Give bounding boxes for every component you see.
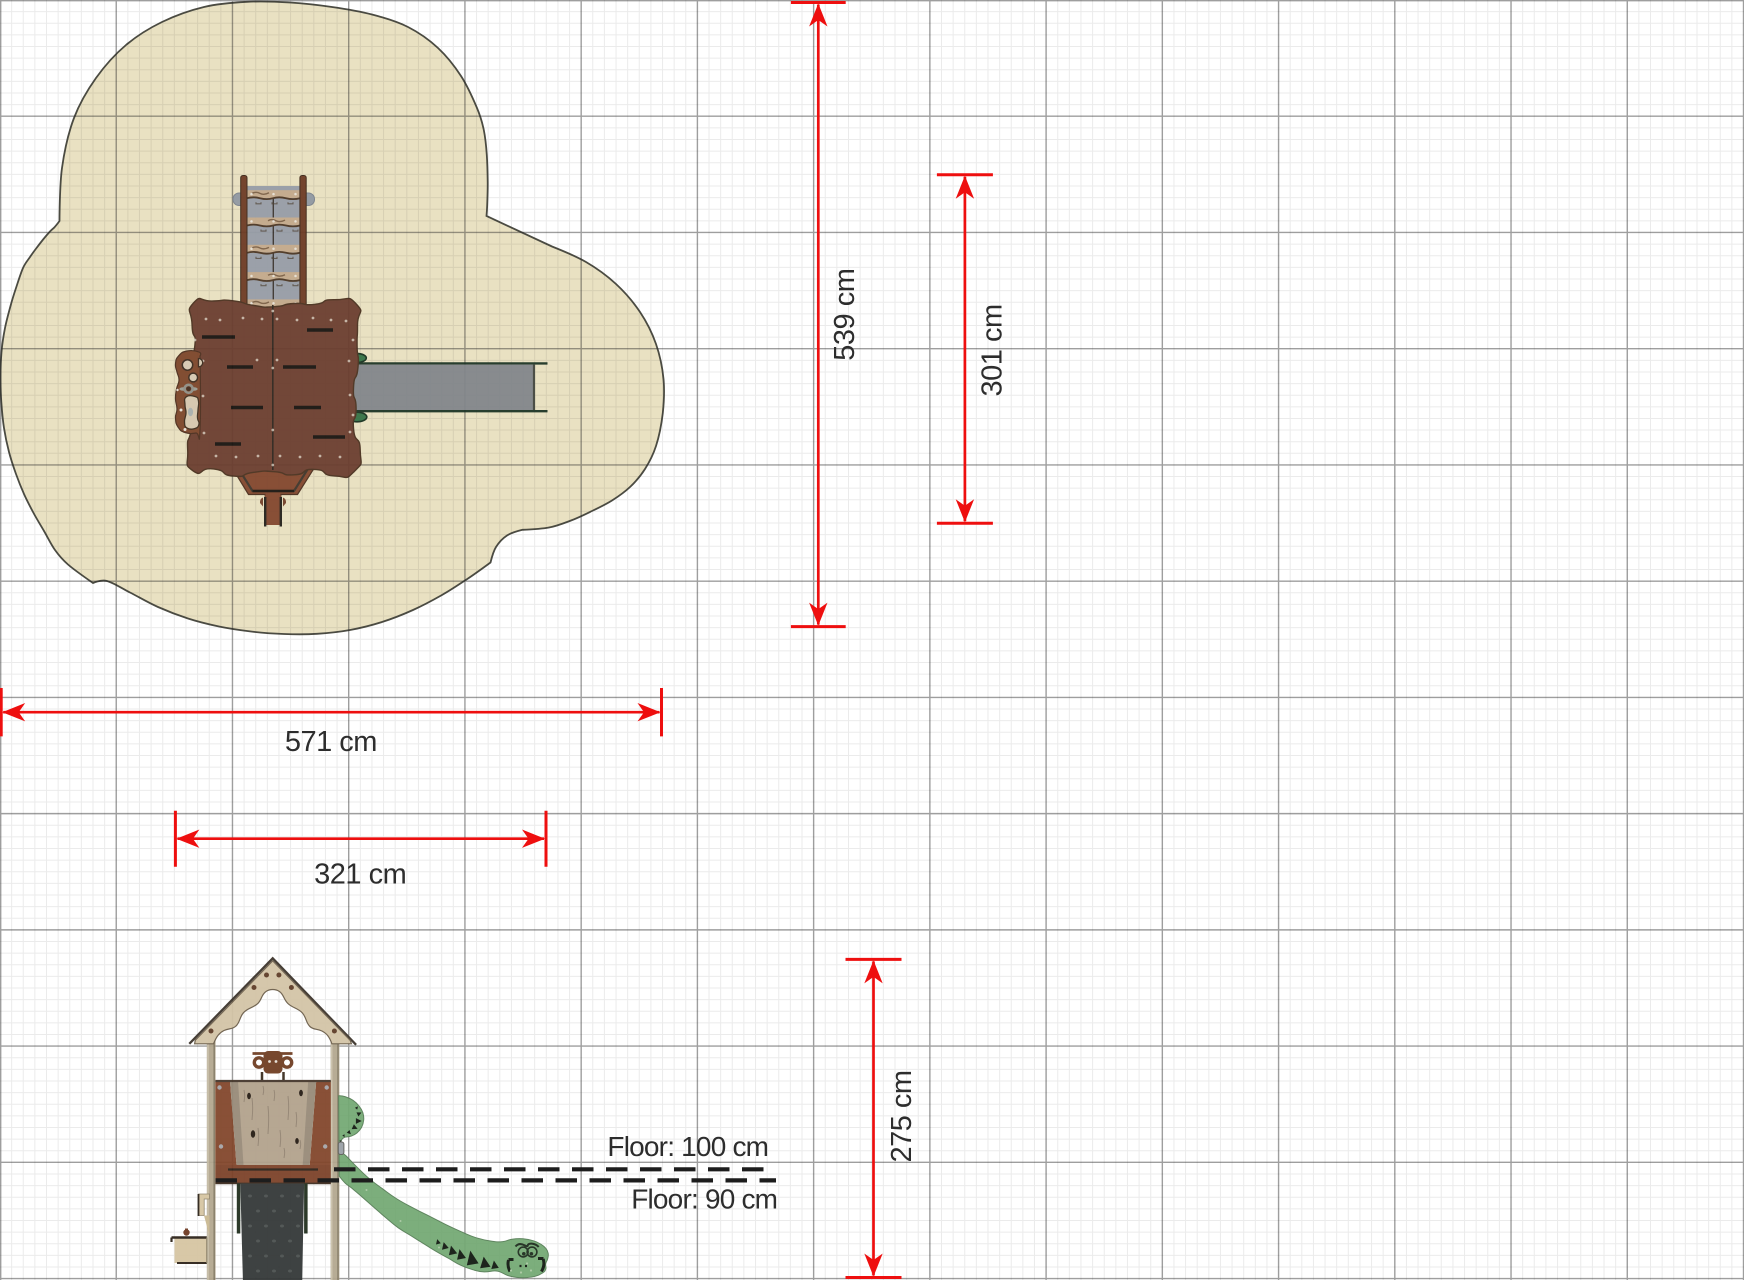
- svg-text:301 cm: 301 cm: [977, 304, 1009, 396]
- svg-text:275 cm: 275 cm: [886, 1070, 918, 1162]
- svg-text:571 cm: 571 cm: [285, 726, 377, 758]
- svg-text:321 cm: 321 cm: [314, 859, 406, 891]
- svg-text:539 cm: 539 cm: [829, 269, 861, 361]
- svg-text:Floor: 90 cm: Floor: 90 cm: [631, 1184, 777, 1215]
- svg-text:Floor: 100 cm: Floor: 100 cm: [607, 1131, 768, 1162]
